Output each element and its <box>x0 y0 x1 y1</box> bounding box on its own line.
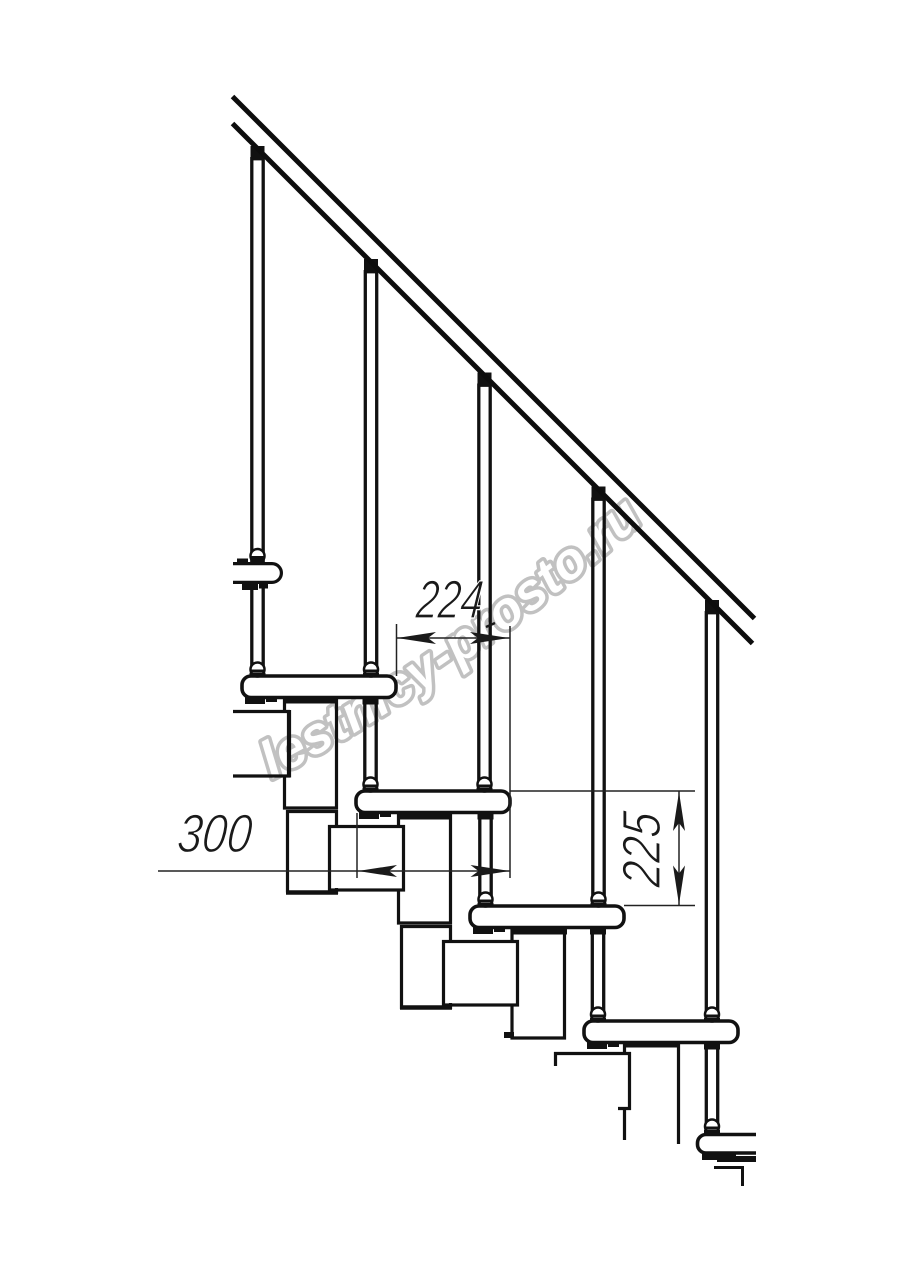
svg-text:225: 225 <box>612 808 672 890</box>
svg-text:224: 224 <box>413 570 486 630</box>
svg-text:300: 300 <box>175 804 255 864</box>
